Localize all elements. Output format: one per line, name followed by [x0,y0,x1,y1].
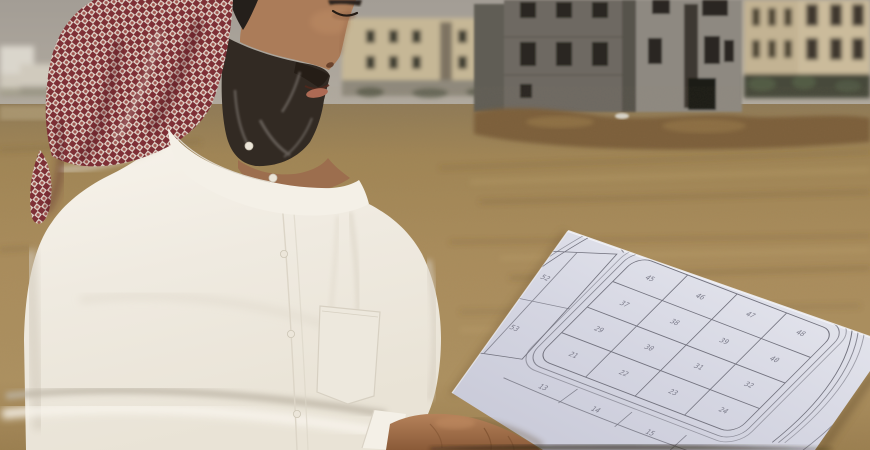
tree [748,77,776,91]
chest-pocket [317,306,380,404]
window-opening [592,2,608,18]
window-opening [556,2,572,18]
scene: 45 46 47 48 37 38 39 40 29 30 31 32 21 2… [0,0,870,450]
window-opening [724,40,734,62]
stairwell-shaft [440,22,452,80]
window-opening [806,4,818,26]
concrete-side-wing [474,4,506,112]
window-opening [458,30,467,43]
window-opening [648,38,662,64]
floor-slab-line [504,74,636,76]
window-opening [520,84,532,98]
window-opening [806,38,818,60]
window-opening [592,42,608,66]
window-opening [556,42,572,66]
window-opening [704,36,720,64]
collar-button [269,174,277,182]
window-opening [412,56,421,69]
shrub [356,87,384,97]
window-opening [366,30,375,43]
collar-button [245,142,253,150]
button [293,410,300,417]
button [280,250,287,257]
window-opening [652,0,670,14]
button [287,330,294,337]
window-opening [520,2,536,18]
window-opening [520,42,536,66]
window-opening [768,8,776,26]
knuckle-highlight [435,417,475,429]
construction-site-photo: 45 46 47 48 37 38 39 40 29 30 31 32 21 2… [0,0,870,450]
window-opening [458,56,467,69]
window-opening [412,30,421,43]
shrub [412,88,448,98]
window-opening [852,4,864,26]
building-facade [342,18,492,84]
window-opening [752,40,760,58]
beige-apartment-building [342,18,492,98]
window-opening [784,40,792,58]
tree [792,75,816,89]
window-opening [830,4,842,26]
window-opening [830,38,842,60]
window-opening [366,56,375,69]
window-opening [389,56,398,69]
floor-slab-line [504,36,636,38]
concrete-corner-shade [622,0,636,112]
window-opening [768,40,776,58]
window-opening [752,8,760,26]
finished-buildings-right [744,0,870,98]
window-opening [389,30,398,43]
window-opening [702,0,728,16]
unfinished-concrete-building [474,0,742,112]
window-opening [784,8,792,26]
tree [835,80,861,92]
window-opening [852,38,864,60]
